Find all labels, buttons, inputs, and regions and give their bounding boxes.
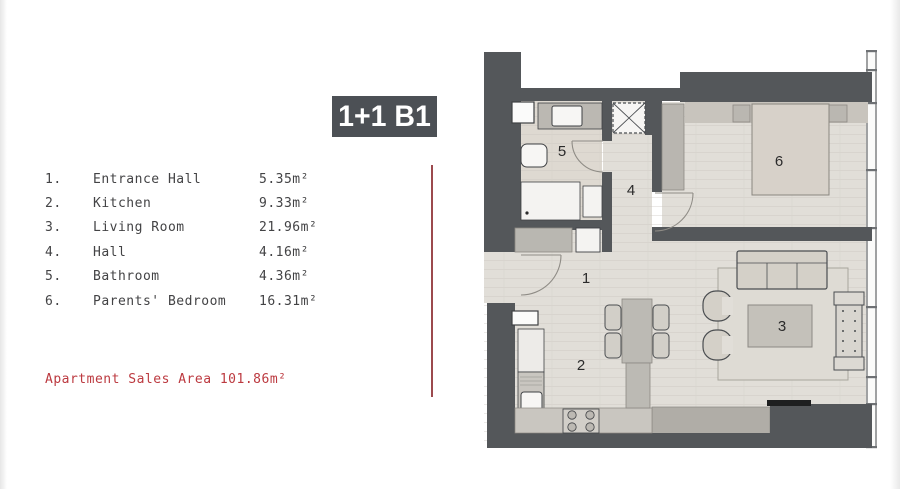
- tv-screen: [767, 400, 811, 406]
- page-root: 1+1 B1 1. Entrance Hall 5.35m² 2. Kitche…: [0, 0, 900, 489]
- floorplan-svg: 1 2 3 4 5 6: [0, 0, 900, 489]
- nightstand-right: [829, 105, 847, 122]
- shower-drain: [525, 211, 528, 214]
- shower: [521, 182, 580, 220]
- fridge: [518, 329, 544, 372]
- armchair-seat-notch: [722, 336, 733, 354]
- label-parents-bedroom: 6: [775, 153, 783, 170]
- label-entrance-hall: 1: [582, 270, 590, 287]
- label-kitchen: 2: [577, 357, 585, 374]
- elevator-shaft: [613, 103, 645, 133]
- wardrobe: [662, 104, 684, 190]
- kitchen-window: [512, 311, 538, 325]
- tv-unit: [834, 292, 864, 370]
- armchair-seat-notch: [722, 297, 733, 315]
- shoe-cabinet: [515, 228, 572, 252]
- label-bathroom: 5: [558, 143, 566, 160]
- sofa: [737, 251, 827, 289]
- toilet: [521, 144, 547, 167]
- kitchen-peninsula: [626, 363, 650, 408]
- bath-sink: [552, 106, 582, 126]
- dining-table: [622, 299, 652, 363]
- label-hall: 4: [627, 182, 635, 199]
- bath-cabinet: [583, 186, 602, 217]
- entry-cabinet: [576, 228, 600, 252]
- bed: [752, 104, 829, 195]
- shaft-box: [512, 102, 534, 123]
- nightstand-left: [733, 105, 750, 122]
- label-living-room: 3: [778, 318, 786, 335]
